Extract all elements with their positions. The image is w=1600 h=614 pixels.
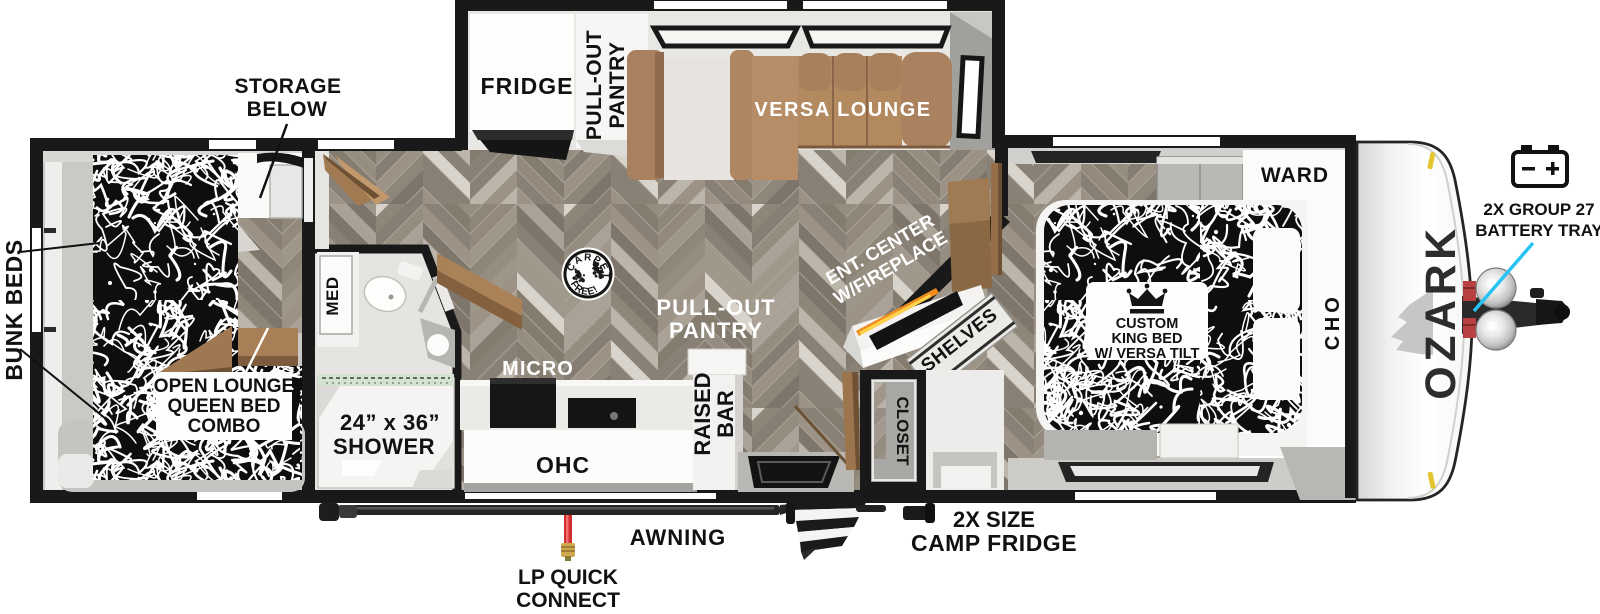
svg-text:AWNING: AWNING	[630, 525, 726, 550]
svg-text:MED: MED	[323, 276, 342, 315]
svg-text:OHC: OHC	[536, 452, 590, 478]
svg-text:C: C	[1322, 336, 1344, 350]
svg-text:BUNK BEDS: BUNK BEDS	[1, 239, 27, 380]
svg-text:PANTRY: PANTRY	[669, 318, 763, 343]
svg-text:CAMP FRIDGE: CAMP FRIDGE	[911, 530, 1077, 556]
svg-text:2X GROUP 27: 2X GROUP 27	[1483, 200, 1594, 219]
svg-text:STORAGE: STORAGE	[235, 75, 342, 98]
svg-text:PANTRY: PANTRY	[606, 42, 629, 129]
svg-text:2X SIZE: 2X SIZE	[953, 507, 1035, 532]
svg-text:OPEN LOUNGE: OPEN LOUNGE	[154, 376, 294, 397]
svg-text:W/ VERSA TILT: W/ VERSA TILT	[1095, 346, 1200, 362]
svg-text:SHOWER: SHOWER	[333, 434, 435, 459]
svg-text:BAR: BAR	[713, 390, 738, 438]
svg-text:VERSA LOUNGE: VERSA LOUNGE	[754, 99, 931, 121]
svg-text:BELOW: BELOW	[247, 98, 328, 121]
svg-text:WARD: WARD	[1261, 164, 1329, 187]
svg-text:24” x 36”: 24” x 36”	[340, 410, 440, 435]
svg-text:OZARK: OZARK	[1417, 224, 1465, 399]
svg-text:CUSTOM: CUSTOM	[1116, 316, 1179, 332]
svg-text:PULL-OUT: PULL-OUT	[656, 295, 775, 320]
svg-text:CLOSET: CLOSET	[893, 397, 912, 467]
svg-text:BATTERY TRAY: BATTERY TRAY	[1475, 221, 1600, 240]
svg-text:MICRO: MICRO	[502, 358, 574, 380]
svg-text:LP QUICK: LP QUICK	[518, 566, 618, 589]
svg-text:CONNECT: CONNECT	[516, 589, 620, 609]
svg-text:PULL-OUT: PULL-OUT	[583, 30, 606, 140]
svg-text:RAISED: RAISED	[690, 372, 715, 455]
svg-text:COMBO: COMBO	[188, 416, 261, 437]
svg-text:O: O	[1322, 297, 1344, 313]
svg-text:H: H	[1322, 317, 1344, 331]
svg-text:QUEEN BED: QUEEN BED	[168, 396, 281, 417]
svg-text:KING BED: KING BED	[1112, 331, 1183, 347]
svg-text:FRIDGE: FRIDGE	[481, 73, 574, 99]
